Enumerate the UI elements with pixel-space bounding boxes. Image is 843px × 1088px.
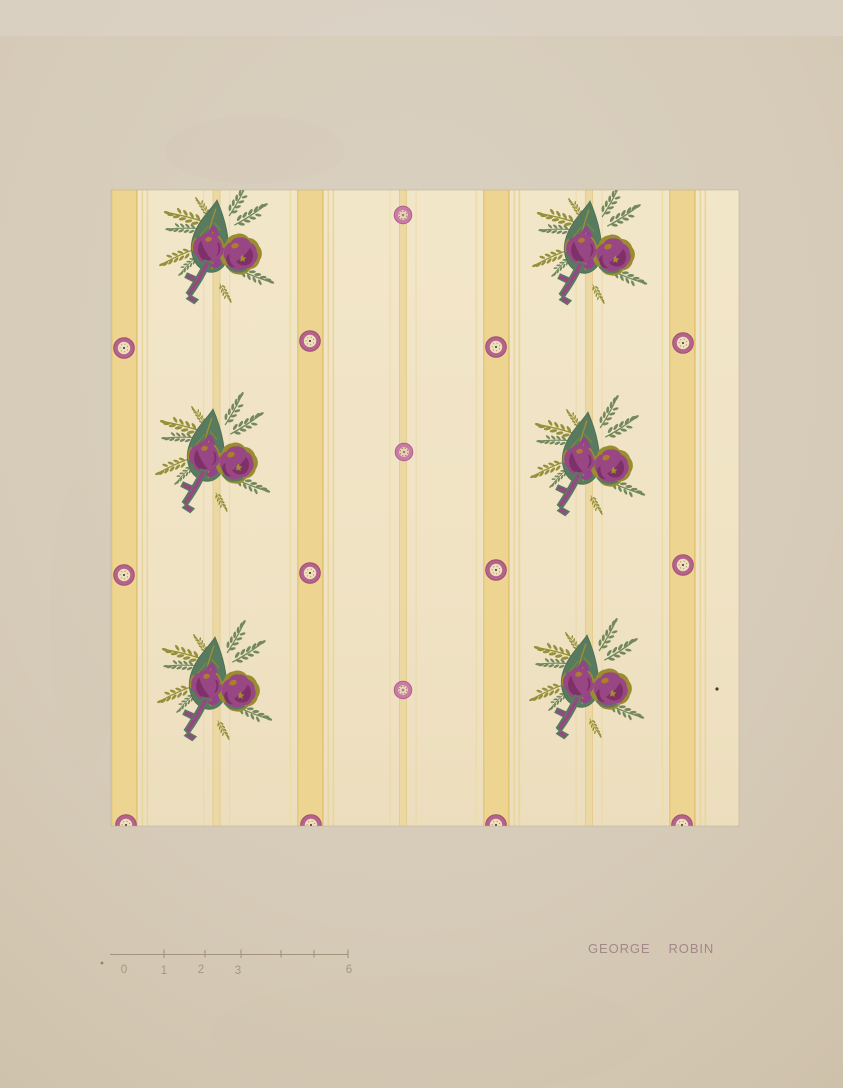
svg-text:3: 3 [235,965,241,977]
svg-text:1: 1 [161,965,167,977]
svg-text:GEORGE ROBIN: GEORGE ROBIN [588,941,714,956]
svg-text:6: 6 [346,964,352,976]
svg-text:2: 2 [198,964,204,976]
svg-text:0: 0 [121,964,127,976]
